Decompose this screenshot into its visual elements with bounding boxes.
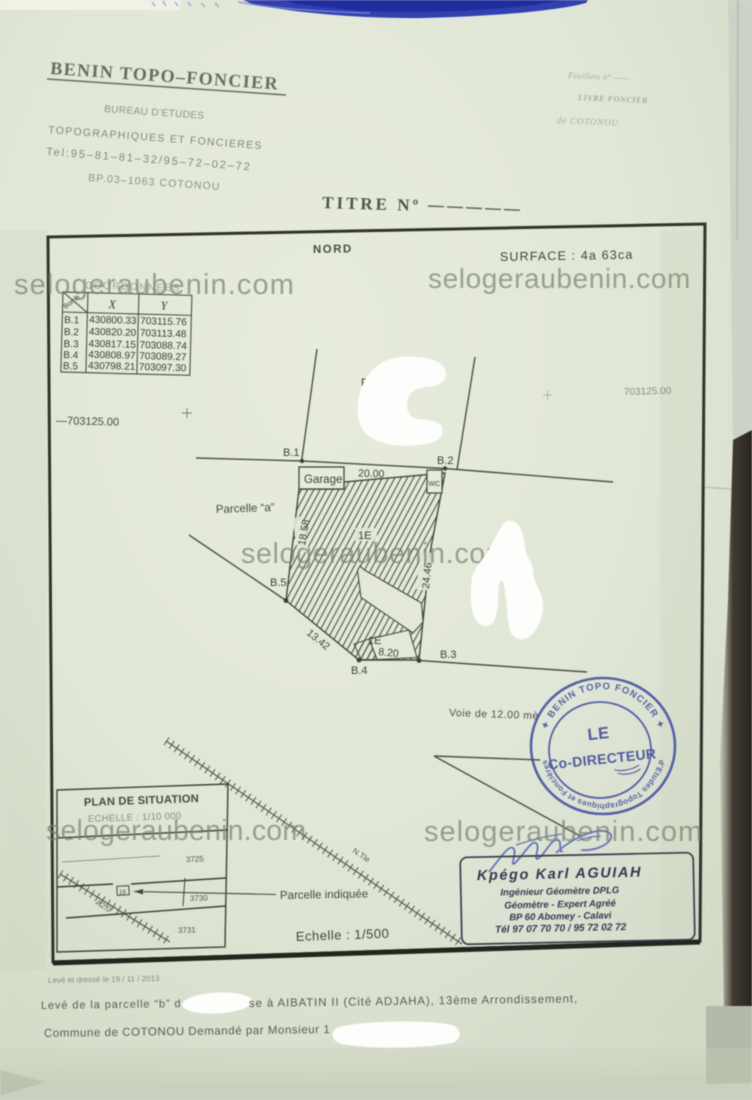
svg-text:selogeraubenin.com: selogeraubenin.com — [424, 816, 703, 848]
svg-text:B.4: B.4 — [63, 350, 79, 361]
svg-text:430800.33: 430800.33 — [89, 315, 137, 327]
svg-text:B.1: B.1 — [64, 315, 80, 326]
svg-text:B.4: B.4 — [351, 665, 368, 677]
svg-text:3730: 3730 — [190, 893, 209, 903]
svg-text:Levé de la parcelle “b” d: Levé de la parcelle “b” d — [41, 998, 182, 1012]
svg-text:B.3: B.3 — [440, 649, 457, 661]
svg-text:703115.76: 703115.76 — [140, 316, 187, 328]
svg-text:LE: LE — [587, 724, 611, 744]
svg-text:selogeraubenin.com: selogeraubenin.com — [14, 269, 295, 301]
svg-text:703097.30: 703097.30 — [139, 362, 187, 374]
svg-text:430820.20: 430820.20 — [89, 327, 137, 339]
svg-text:703125.00: 703125.00 — [624, 386, 672, 398]
svg-text:selogeraubenin.com: selogeraubenin.com — [46, 815, 306, 847]
svg-text:B.3: B.3 — [63, 339, 79, 350]
svg-text:Parcelle indiquée: Parcelle indiquée — [280, 888, 368, 902]
svg-text:SURFACE : 4a 63ca: SURFACE : 4a 63ca — [500, 248, 634, 264]
svg-text:WC: WC — [429, 481, 441, 488]
svg-text:3725: 3725 — [186, 854, 205, 864]
svg-text:Parcelle “a”: Parcelle “a” — [216, 502, 275, 516]
svg-text:TITRE Nº: TITRE Nº — [322, 193, 422, 215]
svg-text:1E: 1E — [368, 635, 381, 647]
svg-text:19: 19 — [119, 890, 126, 896]
svg-text:selogeraubenin.com: selogeraubenin.com — [428, 263, 691, 294]
svg-text:Géomètre - Expert Agréé: Géomètre - Expert Agréé — [504, 898, 616, 911]
svg-text:B.2: B.2 — [437, 455, 454, 467]
svg-text:B.5: B.5 — [270, 577, 287, 589]
svg-text:703113.48: 703113.48 — [140, 328, 187, 340]
svg-text:B.5: B.5 — [63, 361, 79, 372]
svg-text:8.20: 8.20 — [378, 646, 400, 660]
svg-text:B.2: B.2 — [64, 327, 80, 338]
svg-text:BP 60 Abomey - Calavi: BP 60 Abomey - Calavi — [509, 910, 612, 923]
svg-text:selogeraubenin.com: selogeraubenin.com — [241, 538, 510, 570]
svg-text:3731: 3731 — [178, 925, 197, 935]
svg-text:NORD: NORD — [313, 243, 353, 256]
svg-text:—703125.00: —703125.00 — [56, 415, 119, 429]
svg-text:430798.21: 430798.21 — [88, 361, 136, 373]
svg-text:B.1: B.1 — [283, 447, 300, 459]
svg-text:Garage: Garage — [304, 474, 342, 486]
svg-text:20.00: 20.00 — [358, 468, 385, 481]
